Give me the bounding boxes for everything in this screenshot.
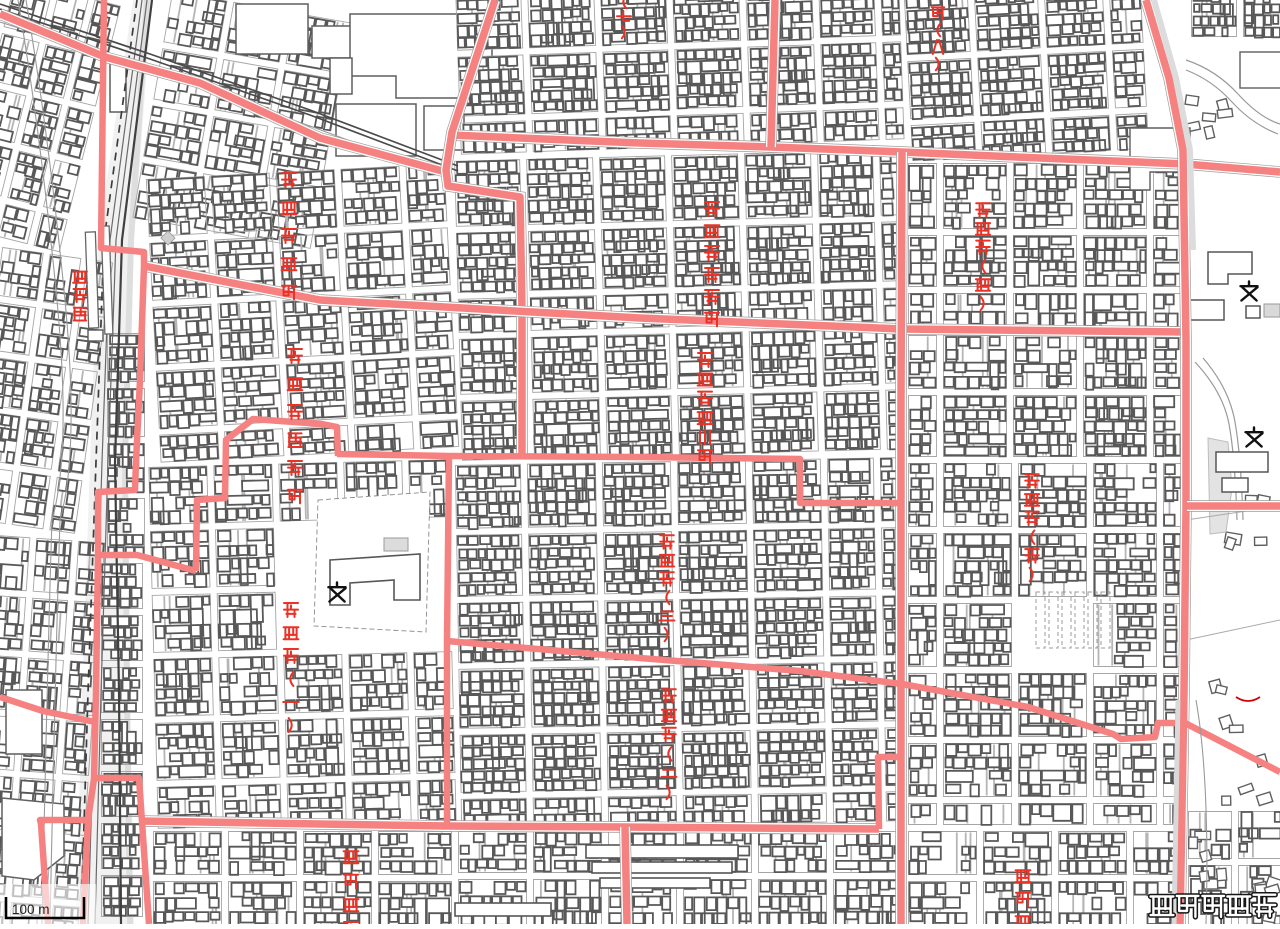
svg-text:100 m: 100 m <box>12 902 50 917</box>
